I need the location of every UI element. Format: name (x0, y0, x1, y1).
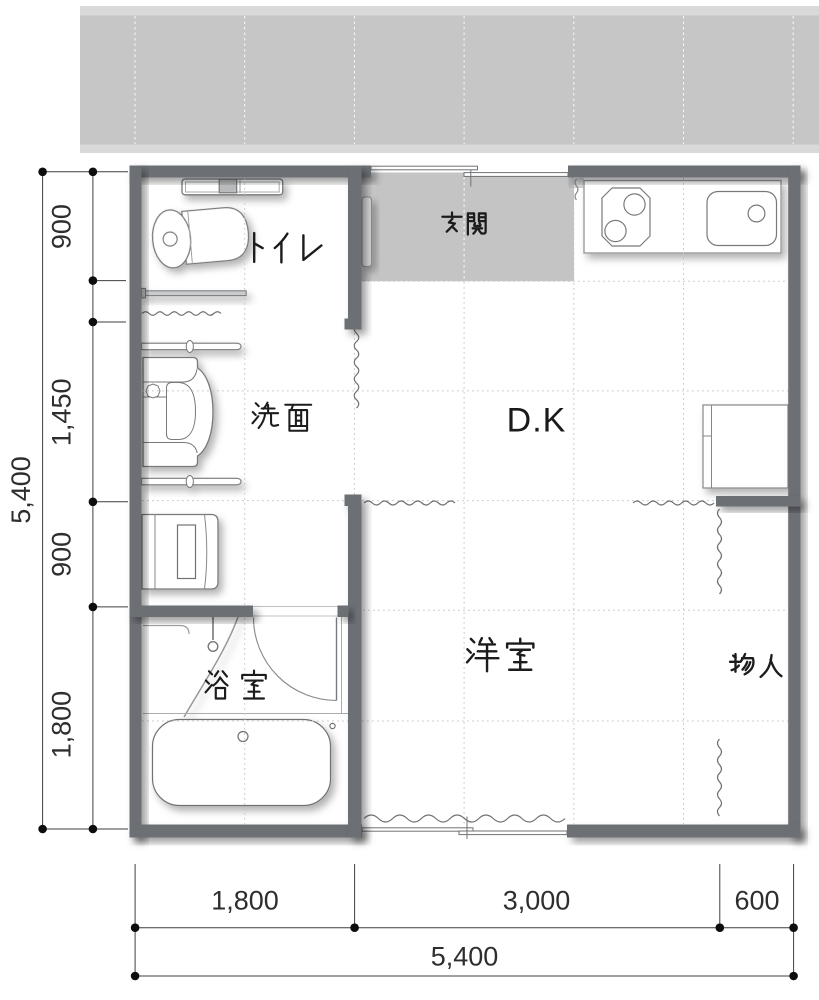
svg-text:D.K: D.K (507, 402, 567, 440)
svg-text:600: 600 (734, 886, 779, 916)
svg-text:5,400: 5,400 (6, 456, 36, 524)
svg-text:1,800: 1,800 (211, 886, 279, 916)
svg-text:900: 900 (47, 532, 77, 577)
svg-text:1,800: 1,800 (47, 691, 77, 759)
svg-text:3,000: 3,000 (503, 886, 571, 916)
svg-text:1,450: 1,450 (47, 379, 77, 447)
svg-text:5,400: 5,400 (431, 942, 499, 972)
svg-text:900: 900 (47, 204, 77, 249)
